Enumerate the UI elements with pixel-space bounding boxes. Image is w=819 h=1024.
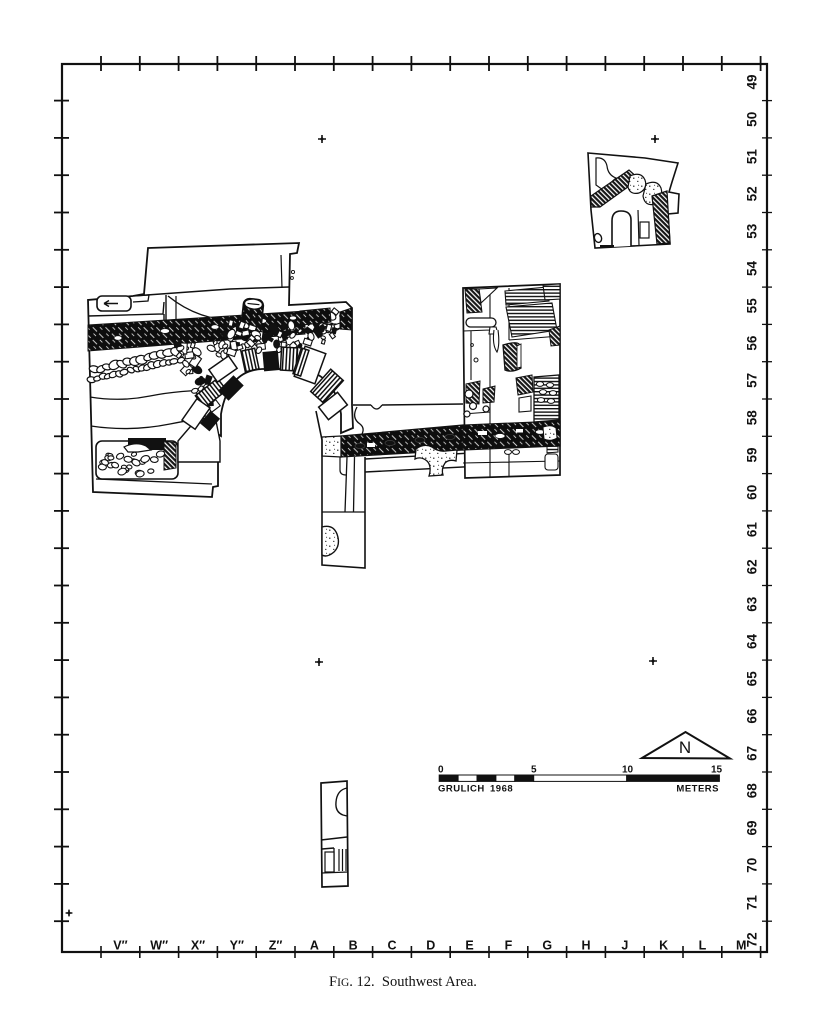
svg-text:15: 15	[711, 765, 723, 776]
svg-text:52: 52	[745, 186, 760, 201]
svg-text:64: 64	[745, 634, 760, 650]
svg-text:51: 51	[745, 149, 760, 165]
svg-text:F: F	[505, 939, 513, 953]
svg-text:H: H	[581, 939, 590, 953]
svg-text:65: 65	[745, 671, 760, 687]
svg-text:FIG. 12. Southwest Area.: FIG. 12. Southwest Area.	[329, 974, 477, 990]
svg-text:Y″: Y″	[230, 939, 244, 953]
svg-text:68: 68	[745, 783, 760, 799]
svg-text:50: 50	[745, 112, 760, 127]
svg-text:N: N	[679, 738, 691, 757]
svg-text:72: 72	[745, 932, 760, 947]
svg-text:GRULICH: GRULICH	[438, 784, 485, 795]
svg-text:57: 57	[745, 373, 760, 388]
svg-text:63: 63	[745, 596, 760, 612]
svg-text:Z″: Z″	[269, 939, 283, 953]
svg-text:67: 67	[745, 746, 760, 761]
svg-text:V″: V″	[113, 939, 127, 953]
svg-text:58: 58	[745, 410, 760, 426]
svg-text:53: 53	[745, 223, 760, 239]
svg-text:D: D	[426, 939, 435, 953]
svg-text:L: L	[699, 939, 707, 953]
svg-text:G: G	[542, 939, 552, 953]
svg-text:E: E	[465, 939, 473, 953]
svg-text:M: M	[736, 939, 746, 953]
svg-text:60: 60	[745, 485, 760, 500]
svg-text:69: 69	[745, 820, 760, 835]
svg-text:49: 49	[745, 74, 760, 89]
svg-text:0: 0	[438, 765, 444, 776]
svg-text:10: 10	[622, 765, 634, 776]
svg-text:METERS: METERS	[676, 784, 719, 795]
svg-text:5: 5	[531, 765, 537, 776]
svg-text:J: J	[621, 939, 628, 953]
svg-text:A: A	[310, 939, 319, 953]
svg-text:70: 70	[745, 858, 760, 873]
svg-text:61: 61	[745, 522, 760, 538]
svg-text:59: 59	[745, 447, 760, 462]
svg-text:71: 71	[745, 895, 760, 911]
svg-text:B: B	[349, 939, 358, 953]
svg-text:1968: 1968	[490, 784, 513, 795]
svg-text:56: 56	[745, 335, 760, 351]
svg-text:C: C	[387, 939, 396, 953]
svg-text:62: 62	[745, 559, 760, 574]
svg-text:W″: W″	[150, 939, 168, 953]
svg-text:54: 54	[745, 261, 760, 277]
svg-text:X″: X″	[191, 939, 205, 953]
svg-text:K: K	[659, 939, 668, 953]
svg-text:55: 55	[745, 298, 760, 314]
svg-text:66: 66	[745, 708, 760, 724]
